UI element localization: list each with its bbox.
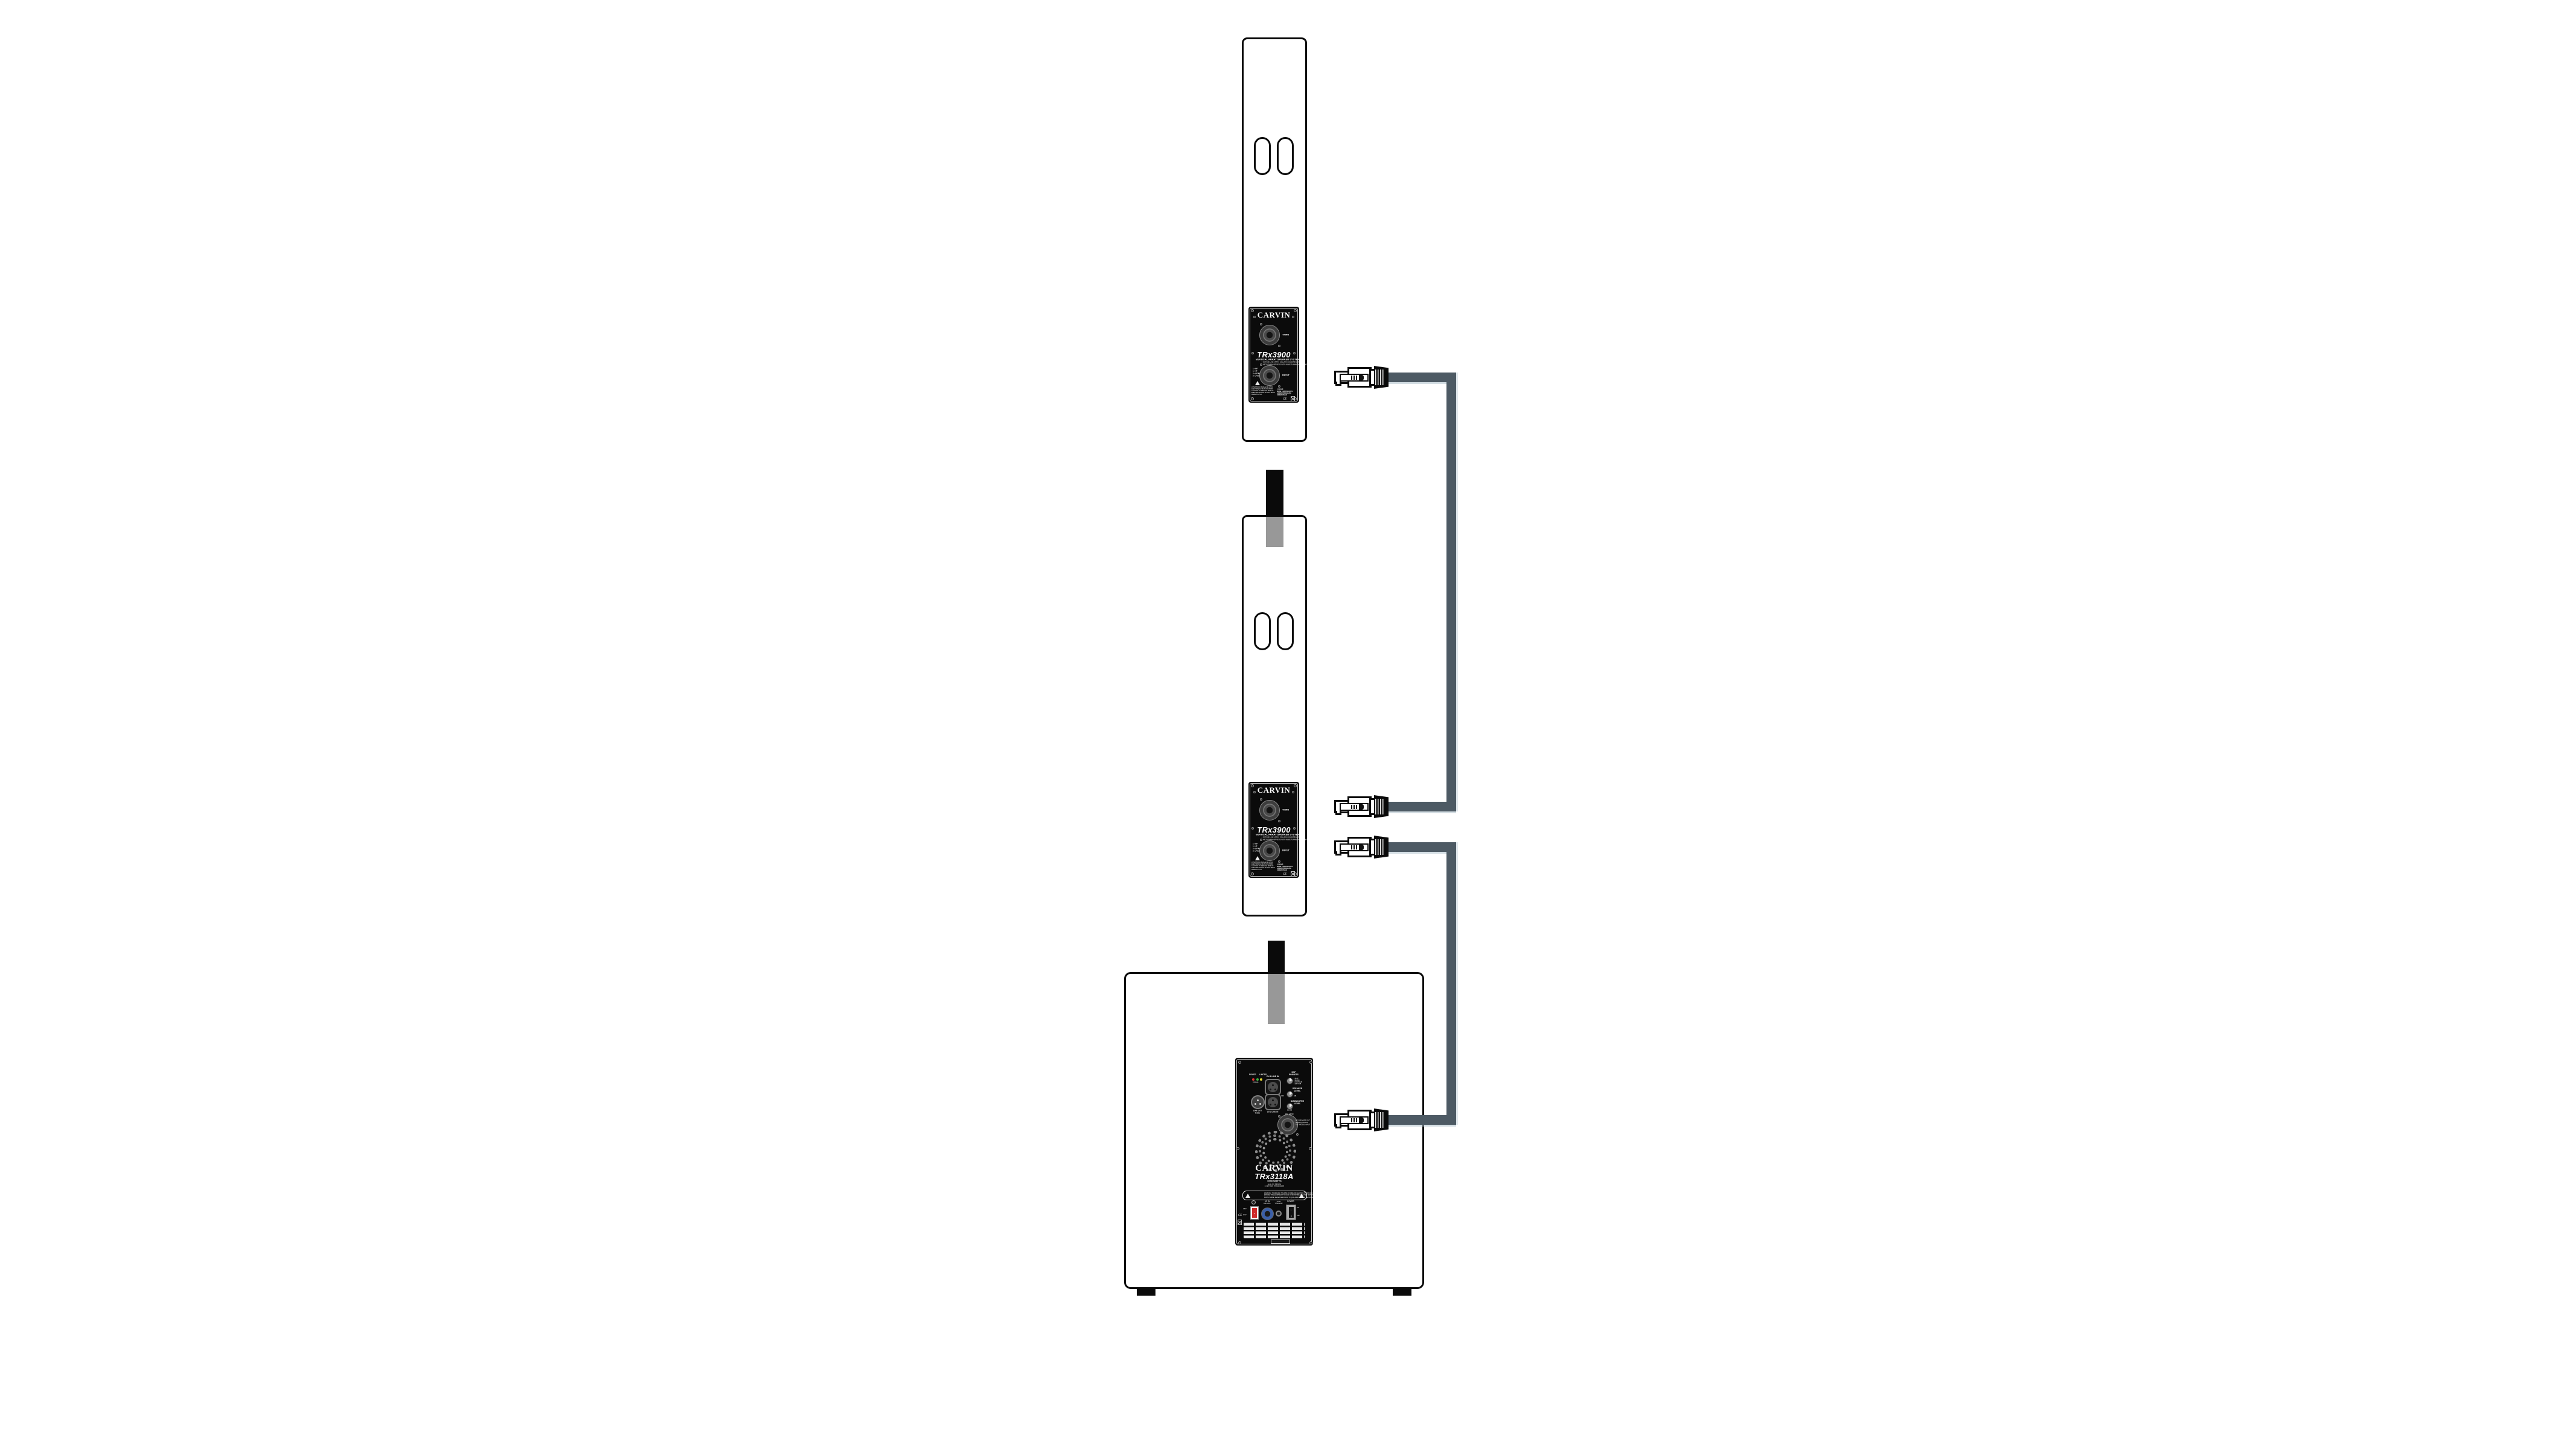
screw-icon (1293, 827, 1296, 830)
subwoofer-level-knob[interactable] (1286, 1103, 1293, 1110)
watts-label: 2000 WATTS (1256, 1180, 1293, 1183)
warning-triangle-icon (1245, 1194, 1250, 1198)
screw-icon (1251, 352, 1254, 354)
speaker-wiring-diagram: CARVIN THRU TRx3900 VERTICAL ARRAY SPEAK… (0, 0, 2576, 1449)
warning-text-block: ATTENTION: RISQUE DE CHOCELECTRIQUE. NE … (1251, 862, 1275, 871)
plug-notch (1335, 1124, 1341, 1128)
screw-icon (1278, 385, 1280, 388)
speakon-plug-mid-input[interactable] (1334, 835, 1389, 859)
screw-icon (1278, 820, 1280, 822)
voltage-lo-label: 115V (1243, 1214, 1246, 1216)
dsp-preset-list: 1 FLAT2 MUSIC 3 CONTOUR4 EXT SUB (1294, 1078, 1302, 1085)
line-out-thru-xlr[interactable] (1251, 1095, 1265, 1109)
signal-label: SIGNAL (1253, 1081, 1259, 1083)
warning-triangle-icon (1255, 381, 1260, 385)
screw-icon (1293, 352, 1296, 354)
fan-grille-icon (1262, 1138, 1288, 1164)
screw-icon (1236, 1147, 1239, 1150)
off-label: OFF (1281, 1095, 1284, 1097)
plug-lock-slot (1340, 803, 1369, 811)
ch2-combo-jack[interactable] (1265, 1094, 1281, 1110)
mount-pole-upper-inserted (1266, 517, 1283, 547)
panel-desc-line: 8 NEODYMIUM DRIVERS WITH WAVE PLANAR HF … (1262, 363, 1286, 365)
screw-icon (1238, 1241, 1241, 1244)
power-switch-label: POWER (1277, 1200, 1305, 1203)
speakon-plug-top-input[interactable] (1334, 365, 1389, 389)
screw-icon (1260, 839, 1262, 841)
subwoofer-foot (1393, 1289, 1411, 1296)
speakon-thru-connector[interactable] (1259, 800, 1280, 820)
middle-speaker-io-panel: CARVIN THRU TRx3900 VERTICAL ARRAY SPEAK… (1248, 782, 1299, 878)
mount-pole-lower (1268, 941, 1285, 974)
switch-off-glyph: O (1291, 1215, 1292, 1217)
switch-on-glyph: I (1290, 1209, 1291, 1211)
screw-icon (1260, 323, 1262, 325)
panel-desc-line: 4 OCTAVE LINE ARRAY COLUMN LOUDSPEAKER (1262, 836, 1286, 838)
handle-cutout (1277, 612, 1294, 650)
cable-2-horizontal-top (1385, 842, 1456, 852)
on-label: ON (1297, 1207, 1299, 1209)
fuse-holder[interactable] (1276, 1211, 1282, 1217)
dsp-label-2: PRESETS (1279, 1073, 1309, 1076)
screw-icon (1238, 1061, 1241, 1064)
signal-led (1256, 1078, 1259, 1081)
panel-subtitle: VERTICAL ARRAY SPEAKER SYSTEM (1256, 833, 1292, 836)
cable-1-horizontal-bottom (1385, 802, 1456, 811)
voltage-arrow-icon: ▼ (1253, 1212, 1255, 1214)
screw-icon (1309, 1147, 1312, 1150)
plug-lock-slot (1340, 374, 1369, 382)
mount-pole-upper (1266, 470, 1283, 517)
power-switch[interactable]: I O (1286, 1204, 1296, 1220)
limiter-led (1260, 1078, 1262, 1081)
screw-icon (1251, 397, 1254, 400)
plug-lock-slot (1340, 1116, 1369, 1124)
weee-bin-icon (1291, 396, 1295, 401)
plug-notch (1335, 382, 1341, 386)
screw-icon (1309, 1061, 1312, 1064)
power-led-label: POWER (1249, 1073, 1256, 1076)
weee-bin-icon (1291, 871, 1295, 877)
ce-mark: CE (1238, 1214, 1242, 1217)
plug-strain-relief (1374, 795, 1389, 818)
serial-tag (1271, 1239, 1290, 1244)
warning-text-block: ATTENTION: RISQUE DE CHOCELECTRIQUE. NE … (1251, 386, 1275, 395)
plug-strain-relief (1374, 1108, 1389, 1131)
screw-icon (1251, 827, 1254, 830)
polarity-degrees: 0 | 180 (1277, 1109, 1302, 1111)
speaker-out-text: HF SPEAKER OUT400W @ 8Ω MINTO TRx3900 IN… (1296, 1119, 1310, 1126)
speakon-input-connector[interactable] (1259, 840, 1280, 861)
screw-icon (1260, 363, 1262, 366)
cable-2-vertical (1446, 842, 1456, 1125)
subwoofer-amp-panel: POWER LIMITER SIGNAL CH 1 LINE IN DSP PR… (1235, 1058, 1313, 1246)
speakon-plug-sub-out[interactable] (1334, 1108, 1389, 1132)
warning-strip: WARNING: TO REDUCE THE RISK OF FIRE OR E… (1242, 1191, 1307, 1200)
screw-icon (1278, 345, 1280, 347)
subwoofer-foot (1137, 1289, 1155, 1296)
ch1-combo-jack[interactable] (1265, 1079, 1281, 1095)
voltage-hi-label: 230V (1243, 1208, 1247, 1210)
screw-icon (1296, 1133, 1299, 1136)
screw-icon (1278, 860, 1280, 863)
speakon-input-connector[interactable] (1259, 365, 1280, 386)
carvin-logo: CARVIN (1248, 310, 1299, 320)
warning-line: EXPOSE THIS EQUIPMENT TO RAIN OR MOISTUR… (1264, 1194, 1286, 1196)
cable-1-horizontal-top (1385, 373, 1456, 382)
spec-text-block: 4 OHMS600W CONTINUOUS 1200W PROGRAM2400W… (1277, 388, 1293, 396)
plug-strain-relief (1374, 836, 1389, 859)
gain-label: 0dB (1294, 1095, 1296, 1097)
thru-label: THRU (1282, 808, 1289, 811)
top-speaker-cabinet: CARVIN THRU TRx3900 VERTICAL ARRAY SPEAK… (1242, 37, 1307, 442)
tag-line: 24 BIT DSP PROCESSOR (1262, 1185, 1286, 1187)
screw-icon (1309, 1241, 1312, 1244)
voltage-selector-switch[interactable]: ▼ (1250, 1206, 1259, 1220)
warning-line: PARTS INSIDE. REFER SERVICING TO QUALIFI… (1264, 1197, 1286, 1198)
input-label: INPUT (1282, 849, 1290, 852)
vent-slots (1244, 1223, 1305, 1238)
off-label: OFF (1297, 1215, 1300, 1217)
plug-notch (1335, 811, 1341, 815)
screw-icon (1278, 1115, 1280, 1118)
power-led (1252, 1078, 1254, 1081)
carvin-logo: CARVIN (1248, 785, 1299, 795)
thru-label: THRU (1282, 333, 1289, 336)
ce-mark: CE (1283, 872, 1286, 876)
weee-bin-icon (1238, 1220, 1242, 1225)
speakon-plug-mid-thru[interactable] (1334, 795, 1389, 819)
panel-subtitle: VERTICAL ARRAY SPEAKER SYSTEM (1256, 358, 1292, 361)
top-speaker-io-panel: CARVIN THRU TRx3900 VERTICAL ARRAY SPEAK… (1248, 307, 1299, 403)
panel-desc-line: 8 NEODYMIUM DRIVERS WITH WAVE PLANAR HF … (1262, 839, 1286, 840)
cable-1-vertical (1446, 373, 1456, 811)
screw-icon (1260, 798, 1262, 801)
dsp-preset-knob[interactable] (1286, 1078, 1293, 1084)
mount-pole-lower-inserted (1268, 974, 1285, 1024)
ac-in-powercon[interactable] (1261, 1207, 1274, 1220)
handle-cutout (1254, 612, 1271, 650)
plug-notch (1335, 851, 1341, 856)
plug-lock-slot (1340, 843, 1369, 851)
panel-desc-line: 4 OCTAVE LINE ARRAY COLUMN LOUDSPEAKER (1262, 361, 1286, 363)
screw-icon (1251, 872, 1254, 875)
input-label: INPUT (1282, 374, 1290, 377)
spec-text-block: 4 OHMS600W CONTINUOUS 1200W PROGRAM2400W… (1277, 863, 1293, 871)
handle-cutout (1254, 137, 1271, 175)
speakon-thru-connector[interactable] (1259, 325, 1280, 345)
middle-speaker-cabinet: CARVIN THRU TRx3900 VERTICAL ARRAY SPEAK… (1242, 515, 1307, 916)
ce-mark: CE (1283, 397, 1286, 401)
speaker-level-knob[interactable] (1286, 1091, 1293, 1098)
plug-strain-relief (1374, 366, 1389, 389)
handle-cutout (1277, 137, 1294, 175)
cable-2-horizontal-bottom (1385, 1115, 1456, 1125)
warning-triangle-icon (1255, 856, 1260, 860)
